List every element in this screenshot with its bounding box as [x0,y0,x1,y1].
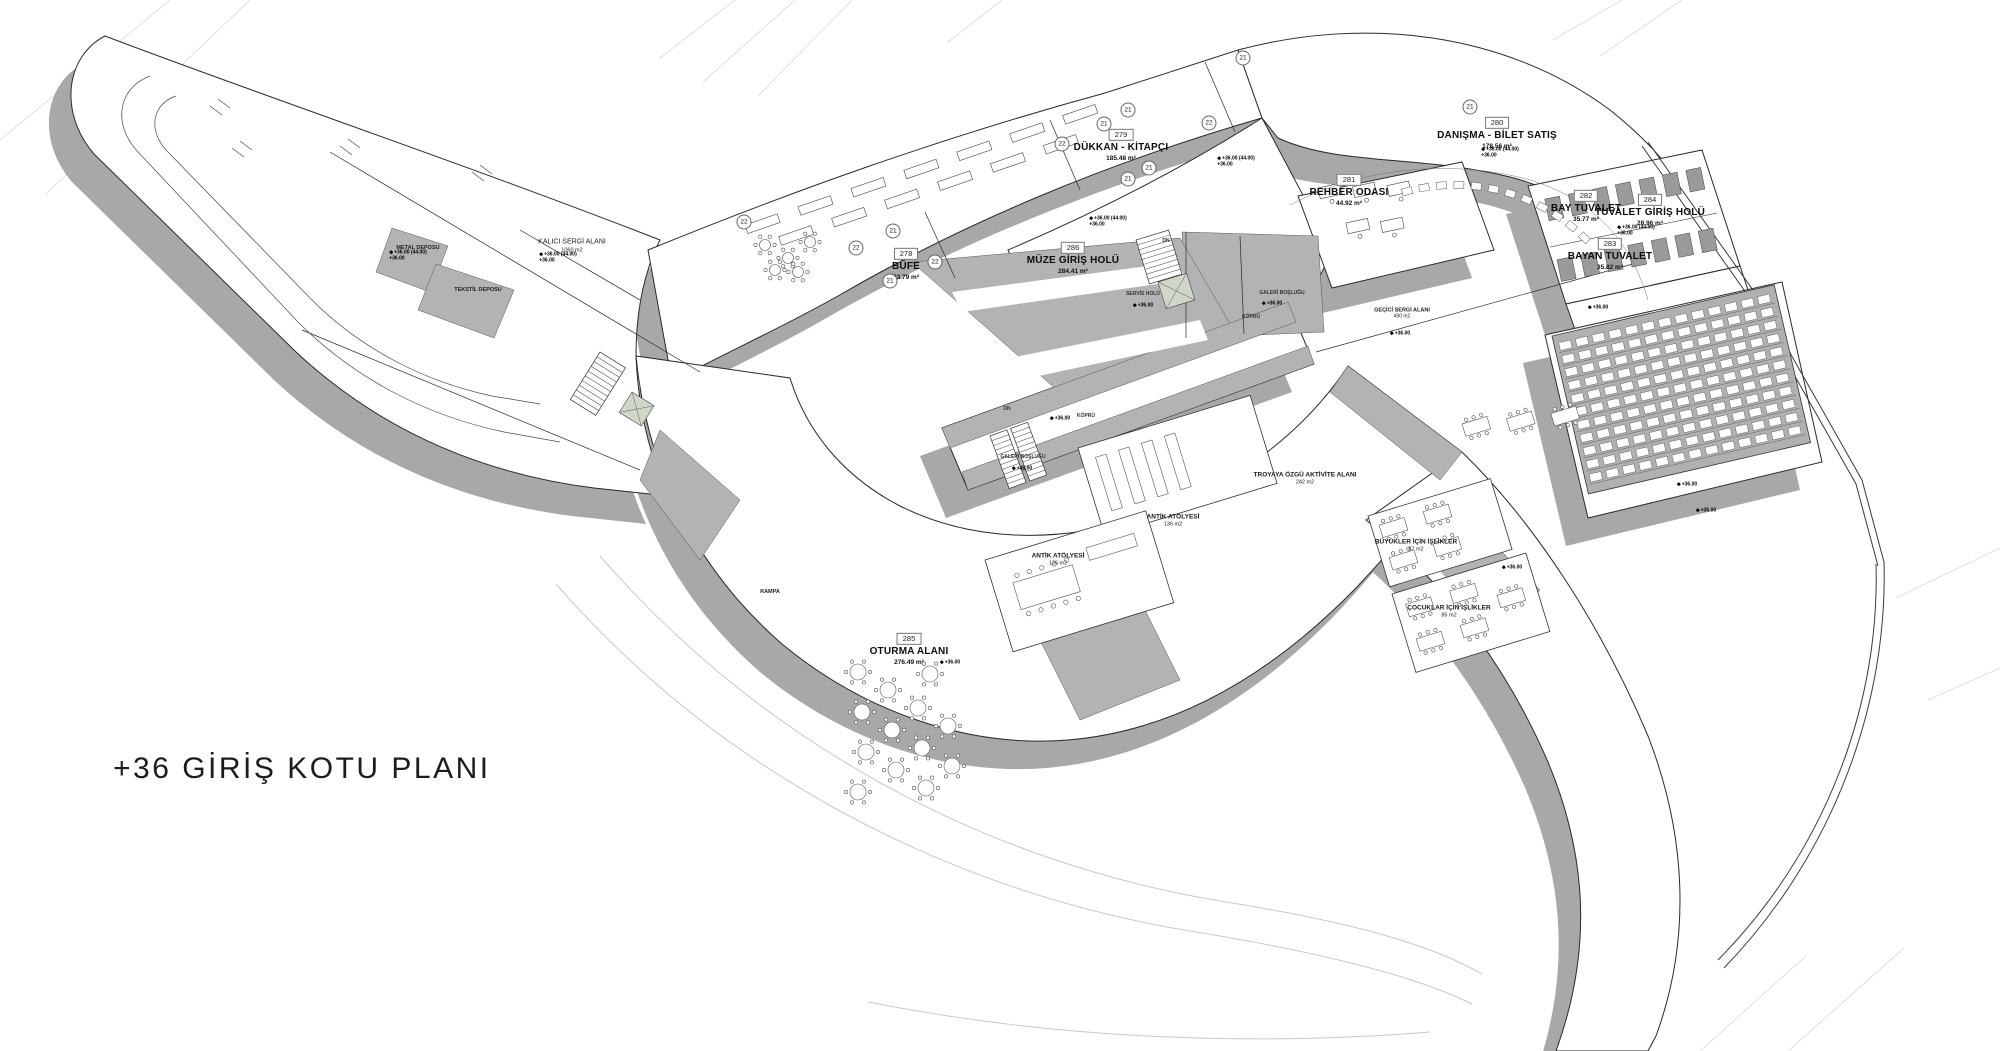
room-number: 286 [1061,242,1086,254]
room-label-danisma: 280 DANIŞMA - BİLET SATIŞ 178.56 m² [1437,112,1557,150]
room-label-dukkan: 279 DÜKKAN - KİTAPÇI 185.48 m² [1074,124,1169,162]
level-marker: ◆+36.00 (44.00)+36.00 [1089,217,1127,228]
room-number: 283 [1598,238,1623,250]
room-name: REHBER ODASI [1309,187,1388,199]
zone-dn-2: DN [1162,239,1169,245]
room-number: 279 [1109,129,1134,141]
level-marker: ◆+36.00 [1133,303,1153,309]
room-number: 284 [1638,194,1663,206]
room-name: OTURMA ALANI [870,646,949,658]
room-label-oturma: 285 OTURMA ALANI 276.49 m² [870,628,949,666]
floor-plan-drawing [0,0,2000,1051]
zone-dn-1: DN [1003,407,1010,413]
zone-kopru-1: KÖPRÜ [1242,315,1260,321]
grid-bubble: 21 [1097,117,1112,132]
room-area: 185.48 m² [1074,155,1169,162]
room-number: 281 [1337,174,1362,186]
grid-bubble: 21 [883,274,898,289]
grid-bubble: 22 [737,215,752,230]
zone-antik-atolyesi-1: ANTİK ATÖLYESİ136 m2 [1147,514,1200,529]
grid-bubble: 22 [1055,137,1070,152]
level-marker: ◆+36.00 (44.00)+36.00 [1217,157,1255,168]
level-marker: ◆+35.00 [1696,508,1716,514]
room-name: BÜFE [892,261,920,273]
zone-cocuklar-islikler: ÇOCUKLAR İÇİN İŞLİKLER85 m2 [1407,605,1490,620]
level-marker: ◆+36.00 (44.00)+36.00 [1481,148,1519,159]
room-number: 280 [1485,117,1510,129]
page-title: +36 GİRİŞ KOTU PLANI [113,752,491,786]
room-label-tuvalet-giris: 284 TUVALET GİRİŞ HOLÜ 28.96 m² [1595,189,1705,227]
grid-bubble: 22 [928,255,943,270]
level-marker: ◆+36.00 [1262,301,1282,307]
room-area: 35.82 m² [1568,264,1652,271]
room-label-rehber: 281 REHBER ODASI 44.92 m² [1309,169,1388,207]
grid-bubble: 21 [1236,51,1251,66]
level-marker: ◆+36.00 (44.00)+36.00 [1617,226,1655,237]
room-name: DANIŞMA - BİLET SATIŞ [1437,130,1557,142]
level-marker: ◆+36.00 [1677,482,1697,488]
grid-bubble: 22 [1202,116,1217,131]
zone-buyukler-islikler: BÜYÜKLER İÇİN İŞLİKLER87 m2 [1375,539,1457,554]
floor-plan-canvas: +36 GİRİŞ KOTU PLANI 279 DÜKKAN - KİTAPÇ… [0,0,2000,1051]
zone-troyaya-ozgu: TROYAYA ÖZGÜ AKTİVİTE ALANI242 m2 [1254,472,1357,487]
grid-bubble: 21 [1463,100,1478,115]
zone-servis-holu: SERVİS HOLÜ [1126,292,1160,298]
level-marker: ◆+36.00 [940,660,960,666]
zone-tekstil-deposu: TEKSTİL DEPOSU [454,287,502,293]
room-name: TUVALET GİRİŞ HOLÜ [1595,207,1705,219]
room-area: 276.49 m² [870,659,949,666]
level-marker: ◆+36.00 [1502,565,1522,571]
grid-bubble: 22 [849,241,864,256]
room-number: 285 [897,633,922,645]
level-marker: ◆+36.00 [1588,305,1608,311]
room-label-muze-giris: 286 MÜZE GİRİŞ HOLÜ 284.41 m² [1027,237,1119,275]
zone-antik-atolyesi-2: ANTİK ATÖLYESİ135 m2 [1032,553,1085,568]
room-label-bayan-tuvalet: 283 BAYAN TUVALET 35.82 m² [1568,233,1652,271]
level-marker: ◆+36.00 (44.00)+36.00 [539,253,577,264]
level-marker: ◆+36.00 [1050,416,1070,422]
room-label-bufe: 278 BÜFE 83.79 m² [892,243,920,281]
level-marker: ◆+36.00 [1012,466,1032,472]
zone-kopru-2: KÖPRÜ [1077,414,1095,420]
room-name: BAYAN TUVALET [1568,251,1652,263]
room-name: DÜKKAN - KİTAPÇI [1074,142,1169,154]
grid-bubble: 21 [1121,103,1136,118]
room-name: MÜZE GİRİŞ HOLÜ [1027,255,1119,267]
zone-rampa: RAMPA [760,589,780,595]
room-area: 44.92 m² [1309,200,1388,207]
level-marker: ◆+36.00 [1390,331,1410,337]
zone-galeri-boslugu-2: GALERİ BOŞLUĞU [1000,455,1045,461]
grid-bubble: 21 [1121,172,1136,187]
zone-galeri-boslugu-1: GALERİ BOŞLUĞU [1259,291,1304,297]
room-area: 284.41 m² [1027,268,1119,275]
grid-bubble: 21 [886,224,901,239]
room-number: 278 [894,248,919,260]
zone-gecici-sergi: GEÇİCİ SERGİ ALANI490 m2 [1374,307,1430,320]
level-marker: ◆+36.00 (44.00)+36.00 [389,251,427,262]
grid-bubble: 21 [1142,161,1157,176]
